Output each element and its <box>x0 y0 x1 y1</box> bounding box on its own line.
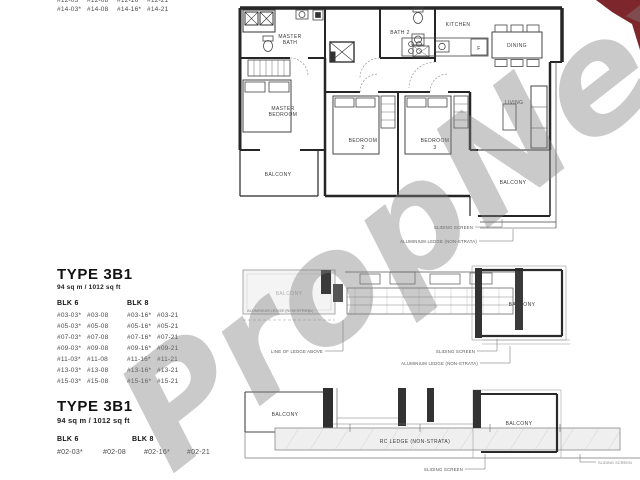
mid-callout-aluminium: ALUMINIUM LEDGE (NON-STRATA) <box>401 361 478 366</box>
unit-number: #03-08 <box>87 311 127 322</box>
unit-number: #02-08 <box>103 448 144 457</box>
room-label-living: LIVING <box>505 100 524 106</box>
unit-number: #07-21 <box>157 333 178 344</box>
rc-ledge-label: RC LEDGE (NON-STRATA) <box>380 439 450 445</box>
unit-number: #03-16* <box>127 311 157 322</box>
unit-number: #11-16* <box>127 355 157 366</box>
unit-list-top: #12-03*#12-08#12-16*#12-21#14-03*#14-08#… <box>57 0 177 14</box>
propnex-logo-corner <box>590 0 640 52</box>
unit-number: #13-16* <box>127 366 157 377</box>
mid-balcony-right-label: BALCONY <box>509 302 536 308</box>
unit-number: #03-03* <box>57 311 87 322</box>
callout-line-of-ledge: LINE OF LEDGE ABOVE <box>271 349 323 354</box>
room-label-dining: DINING <box>507 43 527 49</box>
unit-number: #07-03* <box>57 333 87 344</box>
unit-number: #09-08 <box>87 344 127 355</box>
unit-number: #05-21 <box>157 322 178 333</box>
bottom-floor-plan: BALCONY RC LEDGE (NON-STRATA) BALCONY SL… <box>230 388 640 480</box>
unit-list-mid: #03-03*#03-08#03-16*#03-21#05-03*#05-08#… <box>57 311 232 388</box>
unit-number: #03-21 <box>157 311 178 322</box>
type-area: 94 sq m / 1012 sq ft <box>57 284 232 292</box>
unit-row: #13-03*#13-08#13-16*#13-21 <box>57 366 232 377</box>
unit-number: #05-03* <box>57 322 87 333</box>
unit-row: #03-03*#03-08#03-16*#03-21 <box>57 311 232 322</box>
unit-number: #13-03* <box>57 366 87 377</box>
unit-row: #15-03*#15-08#15-16*#15-21 <box>57 377 232 388</box>
unit-number: #02-16* <box>144 448 187 457</box>
block-headers: BLK 6 BLK 8 <box>57 300 232 309</box>
unit-number: #13-08 <box>87 366 127 377</box>
unit-number: #09-21 <box>157 344 178 355</box>
unit-number: #11-08 <box>87 355 127 366</box>
svg-text:BATH: BATH <box>283 40 298 46</box>
bottom-balcony-left-label: BALCONY <box>272 412 299 418</box>
unit-number: #05-16* <box>127 322 157 333</box>
unit-number: #09-16* <box>127 344 157 355</box>
room-label-balcony-right: BALCONY <box>500 180 527 186</box>
unit-number: #14-21 <box>147 5 177 14</box>
floorplan-page: #12-03*#12-08#12-16*#12-21#14-03*#14-08#… <box>0 0 640 480</box>
unit-row: #11-03*#11-08#11-16*#11-21 <box>57 355 232 366</box>
unit-number: #15-08 <box>87 377 127 388</box>
blk-6-header-bottom: BLK 6 <box>57 436 79 443</box>
top-floor-plan: MASTER BATH BATH 2 KITCHEN DINING LIVING… <box>230 0 565 242</box>
mid-callout-left-ledge: ALUMINIUM LEDGE (NON-STRATA) <box>247 308 314 313</box>
unit-number: #02-21 <box>187 448 210 457</box>
unit-row: #09-03*#09-08#09-16*#09-21 <box>57 344 232 355</box>
type-3b1-section-mid: TYPE 3B1 94 sq m / 1012 sq ft BLK 6 BLK … <box>57 266 232 388</box>
room-label-kitchen: KITCHEN <box>446 22 471 28</box>
room-label-bedroom3: BEDROOM <box>421 138 450 144</box>
unit-number: #11-21 <box>157 355 178 366</box>
bottom-callout-sliding: SLIDING SCREEN <box>424 467 463 472</box>
unit-row: #05-03*#05-08#05-16*#05-21 <box>57 322 232 333</box>
svg-text:BEDROOM: BEDROOM <box>269 112 298 118</box>
unit-row: #14-03*#14-08#14-16*#14-21 <box>57 5 177 14</box>
blk-6-header: BLK 6 <box>57 300 79 307</box>
unit-number: #07-08 <box>87 333 127 344</box>
unit-number: #15-21 <box>157 377 178 388</box>
unit-number: #13-21 <box>157 366 178 377</box>
unit-number: #15-16* <box>127 377 157 388</box>
unit-number: #14-03* <box>57 5 87 14</box>
unit-number: #14-08 <box>87 5 117 14</box>
mid-floor-plan: BALCONY ALUMINIUM LEDGE (NON-STRATA) BAL… <box>235 262 640 396</box>
corner-red-shape <box>596 0 640 50</box>
room-label-bath2: BATH 2 <box>390 30 410 36</box>
unit-number: #07-16* <box>127 333 157 344</box>
unit-number: #11-03* <box>57 355 87 366</box>
blk-8-header-bottom: BLK 8 <box>132 436 154 443</box>
unit-number: #14-16* <box>117 5 147 14</box>
mid-callout-sliding: SLIDING SCREEN <box>436 349 475 354</box>
room-label-bedroom2: BEDROOM <box>349 138 378 144</box>
type-title: TYPE 3B1 <box>57 266 232 283</box>
fridge-label: F <box>477 46 480 52</box>
callout-sliding-screen: SLIDING SCREEN <box>434 225 473 230</box>
bottom-callout-sliding-2: SLIDING SCREEN <box>598 460 632 465</box>
bottom-balcony-right-label: BALCONY <box>506 421 533 427</box>
unit-number: #09-03* <box>57 344 87 355</box>
svg-text:2: 2 <box>361 145 364 151</box>
unit-number: #02-03* <box>57 448 103 457</box>
unit-row: #07-03*#07-08#07-16*#07-21 <box>57 333 232 344</box>
callout-aluminium-ledge: ALUMINIUM LEDGE (NON-STRATA) <box>400 239 477 244</box>
room-label-balcony-left: BALCONY <box>265 172 292 178</box>
svg-text:3: 3 <box>433 145 436 151</box>
mid-balcony-left-label: BALCONY <box>276 291 303 297</box>
blk-8-header: BLK 8 <box>127 300 149 307</box>
unit-number: #05-08 <box>87 322 127 333</box>
unit-number: #15-03* <box>57 377 87 388</box>
